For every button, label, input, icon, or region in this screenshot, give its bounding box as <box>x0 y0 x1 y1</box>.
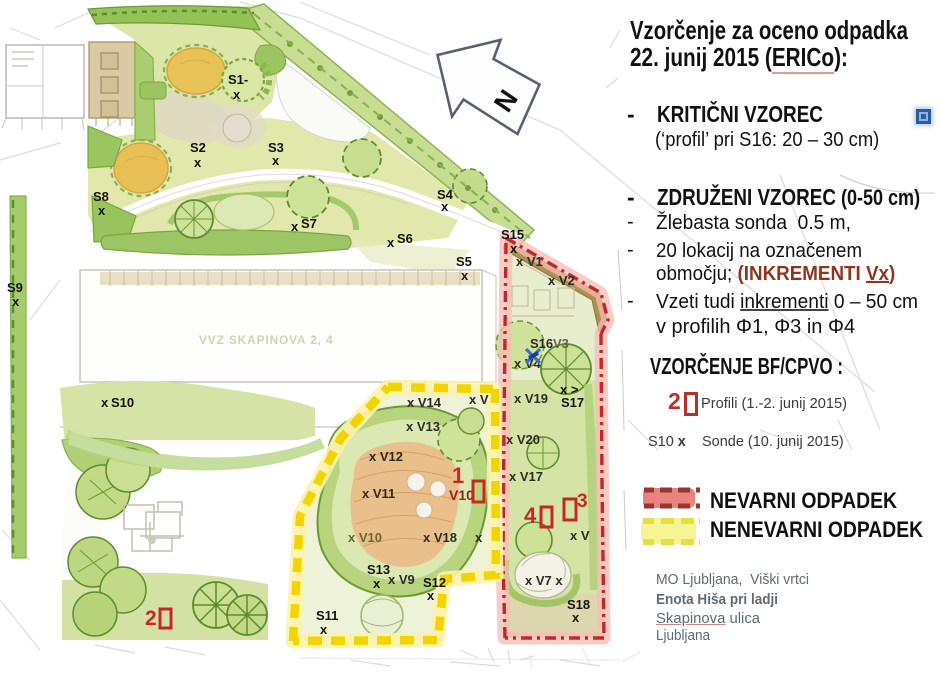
svg-text:S1-: S1- <box>228 72 248 87</box>
svg-text:V3: V3 <box>553 336 569 351</box>
svg-text:1: 1 <box>452 463 464 488</box>
svg-text:x: x <box>572 610 580 625</box>
svg-text:x V18: x V18 <box>423 530 457 545</box>
svg-text:3: 3 <box>577 491 588 512</box>
svg-text:x V17: x V17 <box>509 469 543 484</box>
svg-text:S17: S17 <box>561 395 584 410</box>
svg-text:x: x <box>387 235 395 250</box>
svg-text:x: x <box>461 268 469 283</box>
svg-text:S7: S7 <box>301 216 317 231</box>
svg-text:x V20: x V20 <box>506 432 540 447</box>
svg-text:x: x <box>194 155 202 170</box>
svg-text:x V11: x V11 <box>362 486 395 501</box>
svg-text:x V1: x V1 <box>516 254 543 269</box>
svg-text:x: x <box>98 203 106 218</box>
svg-text:x: x <box>291 219 299 234</box>
svg-text:S9: S9 <box>7 280 23 295</box>
svg-text:S5: S5 <box>456 254 472 269</box>
svg-text:x V12: x V12 <box>369 449 403 464</box>
svg-text:x V13: x V13 <box>406 419 440 434</box>
svg-text:S15: S15 <box>501 227 524 242</box>
svg-text:x V7 x: x V7 x <box>525 573 563 588</box>
svg-text:x: x <box>233 87 241 102</box>
svg-text:4: 4 <box>524 503 537 528</box>
svg-text:V10: V10 <box>449 487 474 503</box>
svg-text:x: x <box>272 153 280 168</box>
svg-text:S2: S2 <box>190 140 206 155</box>
svg-text:x: x <box>373 576 381 591</box>
svg-text:x: x <box>12 294 20 309</box>
svg-text:S16: S16 <box>530 336 553 351</box>
svg-text:x V10: x V10 <box>348 530 382 545</box>
svg-text:x: x <box>101 395 109 410</box>
svg-text:S8: S8 <box>93 189 109 204</box>
svg-text:x: x <box>475 530 483 545</box>
svg-text:x: x <box>320 622 328 637</box>
svg-text:x V: x V <box>469 392 489 407</box>
svg-text:x V: x V <box>570 528 590 543</box>
svg-text:S13: S13 <box>367 562 390 577</box>
svg-text:x V2: x V2 <box>548 273 575 288</box>
svg-text:x: x <box>441 199 449 214</box>
svg-text:S6: S6 <box>397 231 413 246</box>
svg-text:x V14: x V14 <box>407 395 442 410</box>
svg-text:x: x <box>427 588 435 603</box>
svg-text:S11: S11 <box>316 608 338 623</box>
svg-text:x V9: x V9 <box>388 572 415 587</box>
svg-text:S10: S10 <box>111 395 134 410</box>
svg-text:2: 2 <box>145 607 157 630</box>
svg-text:x V19: x V19 <box>514 391 548 406</box>
svg-text:VVZ SKAPINOVA 2, 4: VVZ SKAPINOVA 2, 4 <box>199 333 333 347</box>
